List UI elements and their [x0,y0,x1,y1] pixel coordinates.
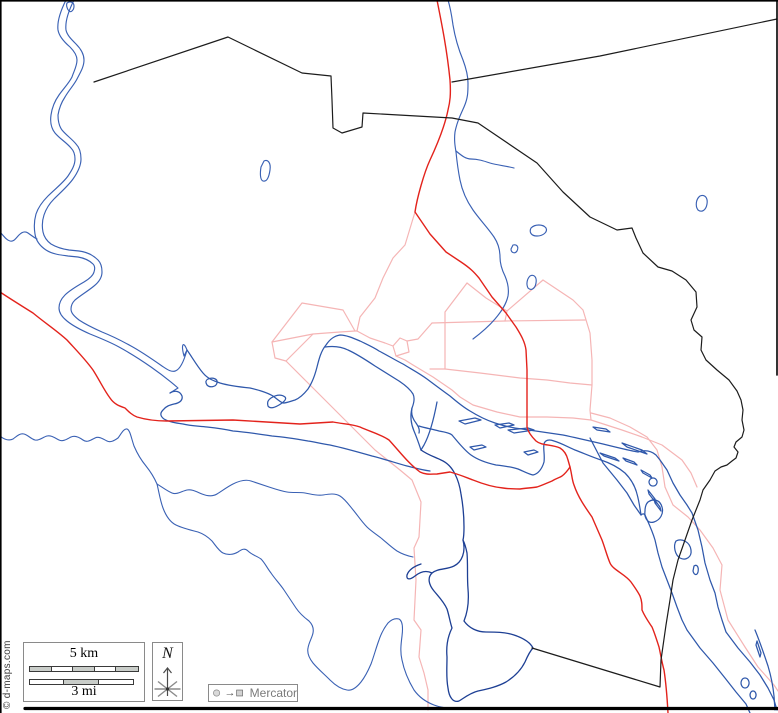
scale-mi-label: 3 mi [24,685,144,699]
north-label: N [153,645,182,663]
lake-dark [421,450,464,540]
scale-km-label: 5 km [24,647,144,661]
river-main [187,335,777,710]
minor-road-pink [396,356,697,487]
river-main [641,470,652,478]
river [456,151,514,168]
river-main [470,445,486,450]
north-arrow-icon [153,663,182,700]
river-main [675,540,692,559]
lake-dark [407,564,432,579]
minor-road-pink [272,331,355,342]
river-main [755,630,775,710]
projection-arrow-icon: → [224,687,235,699]
river [530,225,546,236]
minor-road-pink [591,413,778,691]
projection-box: → Mercator [208,684,298,702]
river-main [750,691,756,699]
minor-road-pink [445,283,467,369]
projection-label: Mercator [250,686,297,700]
scale-segment [73,667,95,671]
river-main [600,453,619,461]
river [260,160,270,181]
river-main [622,443,647,454]
scale-segment [52,667,74,671]
map-canvas[interactable] [0,0,778,713]
copyright-text: © d-maps.com [2,629,16,709]
river [511,245,518,253]
river-main [421,402,437,450]
scale-segment [30,667,52,671]
river [0,232,37,241]
river-main [268,395,286,408]
scale-segment [116,667,138,671]
river-main [623,458,637,465]
lake-dark [429,540,533,701]
river-main [161,391,430,471]
river [696,195,707,211]
stream [157,480,413,557]
road-red [415,0,668,713]
boundary [94,37,744,687]
river-main [419,426,750,713]
river-main [741,678,749,688]
river-main [693,565,698,574]
scale-segment [99,680,133,684]
minor-road-pink [507,280,543,311]
boundary [452,19,777,82]
minor-road-pink [432,320,585,323]
map-canvas-wrap [0,0,778,713]
river [448,0,508,339]
river-main [459,418,481,424]
minor-road-pink [286,361,428,710]
map-square-icon [235,686,244,700]
river-main [649,478,657,486]
river [527,275,536,289]
minor-road-pink [543,280,592,420]
minor-road-pink [407,323,432,341]
river-main [593,427,610,432]
river-main [508,428,534,433]
river [42,0,187,371]
scale-segment [95,667,117,671]
river-main [524,450,538,455]
minor-road-pink [430,369,592,385]
river-main [645,500,663,522]
globe-circle-icon [212,686,222,700]
scale-segment [30,680,64,684]
scale-bar-box: 5 km 3 mi [23,642,145,702]
north-arrow-box: N [152,642,183,701]
minor-road-pink [357,212,415,346]
scale-bar-km [29,666,139,672]
